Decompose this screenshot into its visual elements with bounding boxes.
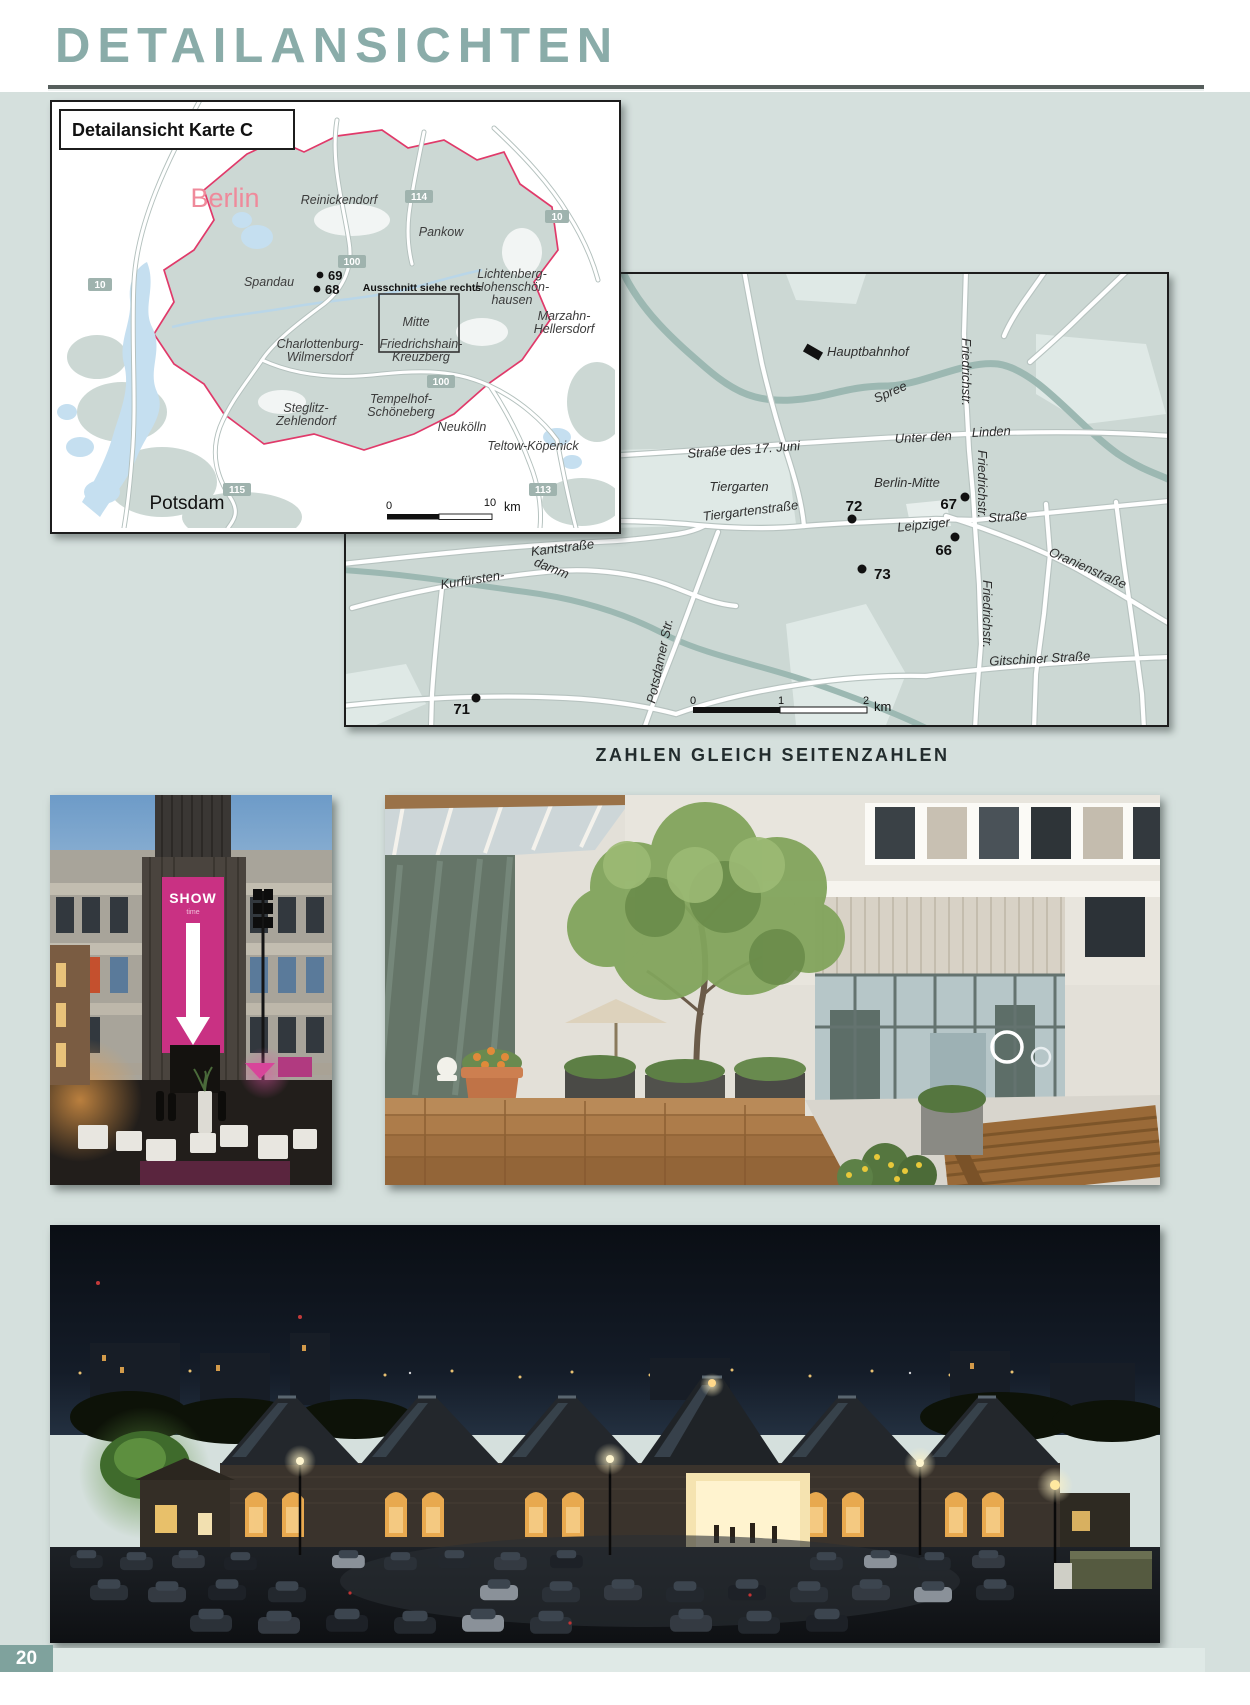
label-pankow: Pankow xyxy=(419,225,464,239)
point-71: 71 xyxy=(453,701,470,718)
scale-mid: 1 xyxy=(778,695,784,707)
pink-carpet xyxy=(140,1161,290,1185)
point-68: 68 xyxy=(325,282,339,297)
point-73: 73 xyxy=(874,566,891,583)
overview-map-berlin: Berlin Reinickendorf Pankow Lichtenberg-… xyxy=(50,100,621,534)
planter-boxes xyxy=(564,1055,806,1103)
corrugated-panels xyxy=(815,897,1065,975)
storefront-glass xyxy=(815,975,1065,1100)
photo-night-panorama xyxy=(50,1225,1160,1643)
label-marzahn-1: Marzahn- xyxy=(538,309,591,323)
label-tiergarten: Tiergarten xyxy=(709,479,768,494)
window-row xyxy=(865,803,1160,865)
scale-unit: km xyxy=(874,699,891,714)
badge-a100-north: 100 xyxy=(344,257,361,268)
scale-start: 0 xyxy=(386,500,392,512)
label-marzahn-2: Hellersdorf xyxy=(534,322,596,336)
label-friedrichshain-1: Friedrichshain- xyxy=(380,337,463,351)
label-mitte: Mitte xyxy=(402,315,429,329)
badge-a113: 113 xyxy=(535,485,552,496)
footer-band xyxy=(53,1648,1205,1672)
label-neukoelln: Neukölln xyxy=(438,420,487,434)
label-lichtenberg-3: hausen xyxy=(491,293,532,307)
label-unter-den: Unter den xyxy=(894,428,952,446)
label-ausschnitt-note: Ausschnitt siehe rechts xyxy=(363,282,482,294)
label-steglitz-2: Zehlendorf xyxy=(275,414,337,428)
badge-a115: 115 xyxy=(229,485,246,496)
banner-arrow-shaft xyxy=(186,923,200,1019)
label-linden: Linden xyxy=(971,423,1011,440)
scale-unit: km xyxy=(504,500,521,514)
gray-planter xyxy=(918,1085,986,1155)
scale-start: 0 xyxy=(690,695,696,707)
point-72: 72 xyxy=(846,498,863,515)
label-berlin: Berlin xyxy=(190,183,259,213)
label-friedrichstr-mid: Friedrichstr. xyxy=(975,450,990,518)
wooden-deck xyxy=(385,1098,870,1185)
label-tempelhof-2: Schöneberg xyxy=(367,405,434,419)
title-rule xyxy=(48,85,1204,91)
label-hauptbahnhof: Hauptbahnhof xyxy=(827,344,910,359)
legend-caption: ZAHLEN GLEICH SEITENZAHLEN xyxy=(385,745,1160,766)
label-friedrichshain-2: Kreuzberg xyxy=(392,350,450,364)
point-66: 66 xyxy=(935,542,952,559)
label-potsdam: Potsdam xyxy=(150,493,225,514)
point-67: 67 xyxy=(940,496,957,513)
label-leipziger-strasse: Straße xyxy=(988,508,1028,526)
scale-end: 10 xyxy=(484,497,496,509)
label-spandau: Spandau xyxy=(244,275,294,289)
photo-courtyard xyxy=(385,795,1160,1185)
map-header-title: Detailansicht Karte C xyxy=(72,120,253,140)
badge-a100-south: 100 xyxy=(433,377,450,388)
label-reinickendorf: Reinickendorf xyxy=(301,193,379,207)
page-header: DETAILANSICHTEN xyxy=(0,0,1250,92)
badge-a114: 114 xyxy=(411,192,428,203)
photo-show-building: SHOW time xyxy=(50,795,332,1185)
scale-end: 2 xyxy=(863,695,869,707)
right-annex xyxy=(1060,1493,1130,1551)
page-title: DETAILANSICHTEN xyxy=(55,18,619,74)
page-number-badge: 20 xyxy=(0,1645,53,1672)
label-charlottenburg-2: Wilmersdorf xyxy=(287,350,355,364)
badge-a10-west: 10 xyxy=(94,280,106,291)
label-berlin-mitte: Berlin-Mitte xyxy=(874,475,940,490)
map-header-box: Detailansicht Karte C xyxy=(60,110,294,149)
banner-title: SHOW xyxy=(169,890,217,906)
photo-courtyard-svg xyxy=(385,795,1160,1185)
label-tempelhof-1: Tempelhof- xyxy=(370,392,432,406)
show-banner: SHOW time xyxy=(162,877,224,1053)
label-teltow: Teltow-Köpenick xyxy=(487,439,579,453)
badge-a10-east: 10 xyxy=(551,212,563,223)
label-friedrichstr-north: Friedrichstr. xyxy=(959,338,974,406)
bottom-margin xyxy=(0,1672,1250,1705)
photo-night-svg xyxy=(50,1225,1160,1643)
label-steglitz-1: Steglitz- xyxy=(283,401,328,415)
point-69: 69 xyxy=(328,268,342,283)
label-lichtenberg-1: Lichtenberg- xyxy=(477,267,547,281)
label-friedrichstr-south: Friedrichstr. xyxy=(980,580,995,648)
photo-show-svg: SHOW time xyxy=(50,795,332,1185)
overview-map-svg: Berlin Reinickendorf Pankow Lichtenberg-… xyxy=(52,102,615,528)
banner-subtitle: time xyxy=(186,909,199,916)
label-lichtenberg-2: Hohenschön- xyxy=(475,280,549,294)
label-charlottenburg-1: Charlottenburg- xyxy=(277,337,364,351)
